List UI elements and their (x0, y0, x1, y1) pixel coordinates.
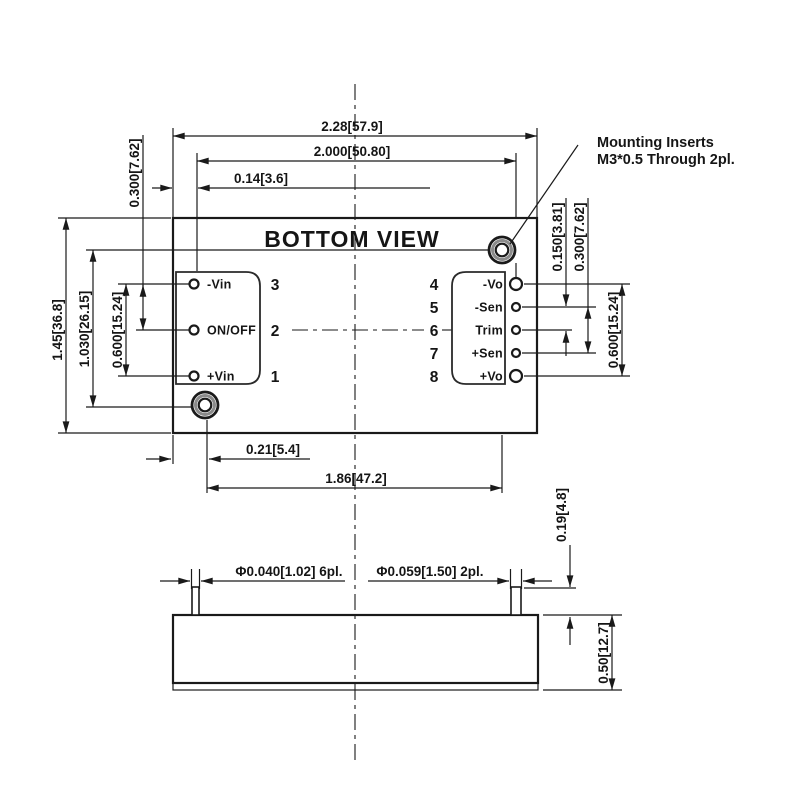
leader-line (510, 145, 578, 244)
mounting-note-line2: M3*0.5 Through 2pl. (597, 152, 735, 168)
view-title: BOTTOM VIEW (264, 226, 439, 252)
pin-3-circle (190, 280, 199, 289)
pin-7-circle (512, 349, 520, 357)
mounting-insert-bottom-left (192, 392, 218, 418)
mounting-note-line1: Mounting Inserts (597, 135, 714, 151)
pin-7-label: +Sen (472, 347, 503, 361)
dim-right-pin-pitch: 0.150[3.81] (550, 202, 565, 271)
dim-overall-height: 1.45[36.8] (50, 299, 65, 361)
dim-pin-dia-large: Φ0.059[1.50] 2pl. (376, 564, 483, 579)
pin-6-label: Trim (475, 324, 503, 338)
pin-2-label: ON/OFF (207, 324, 256, 338)
dim-left-pin-span: 0.600[15.24] (110, 292, 125, 369)
centerlines (292, 84, 452, 762)
pin-1-label: +Vin (207, 370, 235, 384)
dim-pin-length: 0.19[4.8] (554, 488, 569, 542)
side-pin-left (192, 587, 199, 615)
pin-5-number: 5 (430, 300, 439, 317)
pin-2-circle (190, 326, 199, 335)
dim-overall-width: 2.28[57.9] (321, 119, 383, 134)
dim-pin-span-h: 2.000[50.80] (314, 144, 391, 159)
dim-pin-edge-offset: 0.14[3.6] (234, 171, 288, 186)
pin-8-number: 8 (430, 369, 439, 386)
mounting-note: Mounting Inserts M3*0.5 Through 2pl. (510, 135, 735, 244)
dim-left-pin-pitch: 0.300[7.62] (127, 138, 142, 207)
side-pin-right (511, 587, 521, 615)
pin-4-circle (510, 278, 522, 290)
dim-case-height: 0.50[12.7] (596, 622, 611, 684)
pin-3-number: 3 (271, 277, 280, 294)
mechanical-drawing-page: BOTTOM VIEW -Vin ON/OFF +Vin 3 2 1 -Vo -… (0, 0, 800, 800)
dim-pin-dia-small: Φ0.040[1.02] 6pl. (235, 564, 342, 579)
dim-right-pin-span: 0.600[15.24] (606, 292, 621, 369)
side-view: Φ0.040[1.02] 6pl. Φ0.059[1.50] 2pl. 0.19… (160, 488, 622, 690)
pin-4-label: -Vo (483, 278, 503, 292)
pin-8-circle (510, 370, 522, 382)
pin-4-number: 4 (430, 277, 439, 294)
pin-6-circle (512, 326, 520, 334)
top-dimensions: 2.28[57.9] 2.000[50.80] 0.14[3.6] (152, 119, 537, 279)
right-dimensions: 0.150[3.81] 0.300[7.62] 0.600[15.24] (522, 198, 630, 376)
dim-insert-span-h: 1.86[47.2] (325, 471, 387, 486)
mounting-insert-top-right (489, 237, 515, 263)
bottom-dimensions: 0.21[5.4] 1.86[47.2] (146, 420, 502, 493)
pin-1-number: 1 (271, 369, 280, 386)
dim-insert-spacing-v: 1.030[26.15] (77, 291, 92, 368)
dim-insert-offset-x: 0.21[5.4] (246, 442, 300, 457)
pin-8-label: +Vo (480, 370, 503, 384)
pin-6-number: 6 (430, 323, 439, 340)
pin-1-circle (190, 372, 199, 381)
pin-7-number: 7 (430, 346, 439, 363)
pin-5-label: -Sen (475, 301, 503, 315)
dim-right-sen-span: 0.300[7.62] (572, 202, 587, 271)
dc-dc-converter-outline-drawing: BOTTOM VIEW -Vin ON/OFF +Vin 3 2 1 -Vo -… (0, 0, 800, 800)
pin-2-number: 2 (271, 323, 280, 340)
pin-3-label: -Vin (207, 278, 232, 292)
pin-5-circle (512, 303, 520, 311)
